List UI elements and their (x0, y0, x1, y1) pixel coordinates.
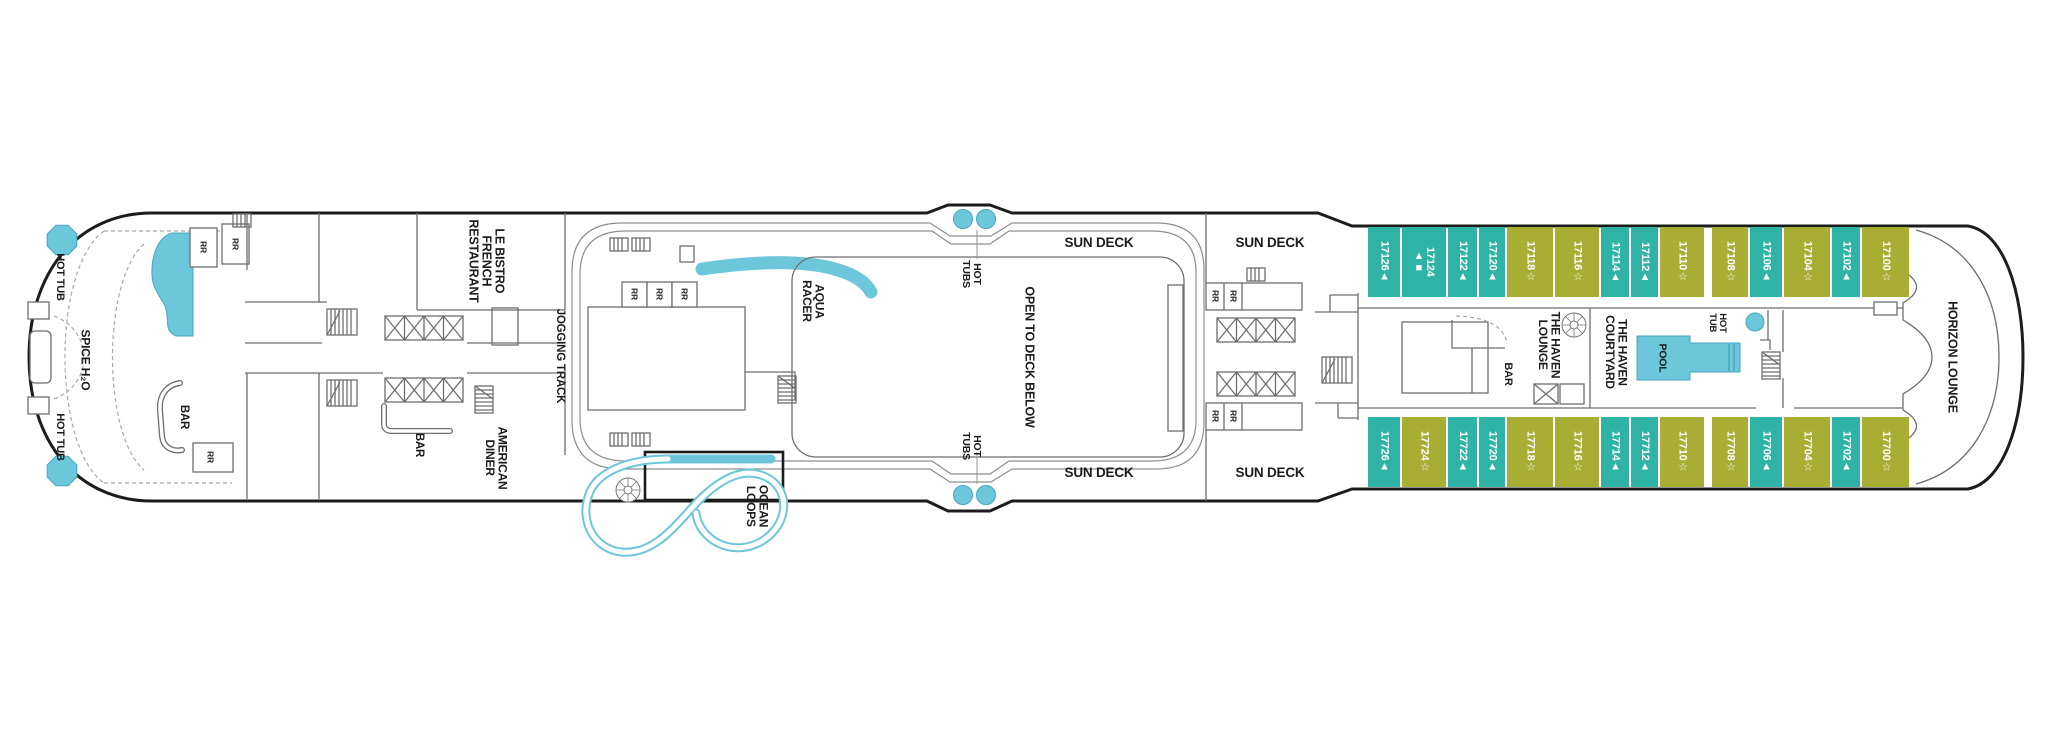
cabin-17724: 17724☆ (1402, 417, 1446, 487)
rr-label: RR (199, 241, 208, 253)
cabin-17104: 17104☆ (1784, 227, 1830, 297)
cabin-17114: 17114▲ (1601, 227, 1629, 297)
cabin-17112: 17112▲ (1631, 227, 1658, 297)
bar-haven-label: BAR (1501, 362, 1513, 385)
cabin-17124: 17124▲■ (1402, 227, 1446, 297)
cabin-17700: 17700☆ (1862, 417, 1909, 487)
rr-label: RR (206, 451, 215, 463)
hot-tub-mid-top-1 (954, 210, 973, 229)
open-to-deck-below-label: OPEN TO DECK BELOW (1022, 286, 1035, 427)
hot-tub-aft-top-label: HOT TUB (53, 253, 65, 300)
hot-tub-mid-top-2 (977, 210, 996, 229)
cabin-17706: 17706▲ (1750, 417, 1782, 487)
spice-h2o-label: SPICE H₂O (79, 330, 92, 391)
deck-plan: HOT TUB HOT TUB SPICE H₂O RR RR BAR RR L… (0, 0, 2048, 737)
cabin-17102: 17102▲ (1832, 227, 1860, 297)
hot-tub-mid-bottom-2 (977, 486, 996, 505)
rr-label: RR (1211, 290, 1220, 302)
le-bistro-label: LE BISTRO FRENCH RESTAURANT (466, 219, 505, 302)
cabin-17108: 17108☆ (1712, 227, 1748, 297)
cabin-17720: 17720▲ (1479, 417, 1505, 487)
hot-tub-aft-bottom-label: HOT TUB (53, 413, 65, 460)
rr-label: RR (1211, 410, 1220, 422)
spiral-stairs-icon (616, 478, 640, 502)
spiral-stairs-icon (1562, 313, 1586, 337)
cabin-17704: 17704☆ (1784, 417, 1830, 487)
cabin-17714: 17714▲ (1601, 417, 1629, 487)
rr-label: RR (680, 288, 689, 300)
aqua-racer-label: AQUA RACER (800, 280, 825, 322)
cabin-17702: 17702▲ (1832, 417, 1860, 487)
horizon-lounge-label: HORIZON LOUNGE (1945, 301, 1958, 413)
cabin-17116: 17116☆ (1555, 227, 1599, 297)
cabin-17718: 17718☆ (1507, 417, 1553, 487)
sun-deck-label: SUN DECK (1065, 466, 1134, 480)
hot-tub-mid-bottom-1 (954, 486, 973, 505)
hot-tub-haven-label: HOT TUB (1707, 313, 1727, 332)
cabin-17122: 17122▲ (1448, 227, 1477, 297)
stage-platform (30, 331, 51, 383)
haven-lounge-label: THE HAVEN LOUNGE (1536, 312, 1561, 379)
american-diner-label: AMERICAN DINER (483, 426, 508, 489)
bar-aft-label: BAR (178, 405, 190, 429)
rr-label: RR (630, 288, 639, 300)
hot-tub-aft-top (47, 225, 77, 255)
sun-deck-label: SUN DECK (1065, 236, 1134, 250)
sun-deck-label: SUN DECK (1236, 466, 1305, 480)
rr-label: RR (231, 238, 240, 250)
cabin-17708: 17708☆ (1712, 417, 1748, 487)
bar-diner-label: BAR (413, 433, 425, 457)
pool-label: POOL (1656, 344, 1667, 373)
haven-courtyard-label: THE HAVEN COURTYARD (1603, 315, 1628, 389)
jogging-track-label: JOGGING TRACK (554, 309, 566, 404)
rr-label: RR (1229, 290, 1238, 302)
cabin-17106: 17106▲ (1750, 227, 1782, 297)
cabin-17100: 17100☆ (1862, 227, 1909, 297)
cabin-17110: 17110☆ (1660, 227, 1704, 297)
cabin-17712: 17712▲ (1631, 417, 1658, 487)
cabin-17126: 17126▲ (1368, 227, 1400, 297)
rr-label: RR (1229, 410, 1238, 422)
rr-label: RR (655, 288, 664, 300)
cabin-17726: 17726▲ (1368, 417, 1400, 487)
sun-deck-label: SUN DECK (1236, 236, 1305, 250)
hot-tub-haven (1746, 313, 1764, 331)
cabin-17118: 17118☆ (1507, 227, 1553, 297)
cabin-17716: 17716☆ (1555, 417, 1599, 487)
hot-tubs-bottom-label: HOT TUBS (960, 432, 982, 460)
cabin-17120: 17120▲ (1479, 227, 1505, 297)
cabin-17722: 17722▲ (1448, 417, 1477, 487)
ocean-loops-label: OCEAN LOOPS (744, 485, 769, 527)
cabin-17710: 17710☆ (1660, 417, 1704, 487)
hot-tubs-top-label: HOT TUBS (960, 260, 982, 288)
